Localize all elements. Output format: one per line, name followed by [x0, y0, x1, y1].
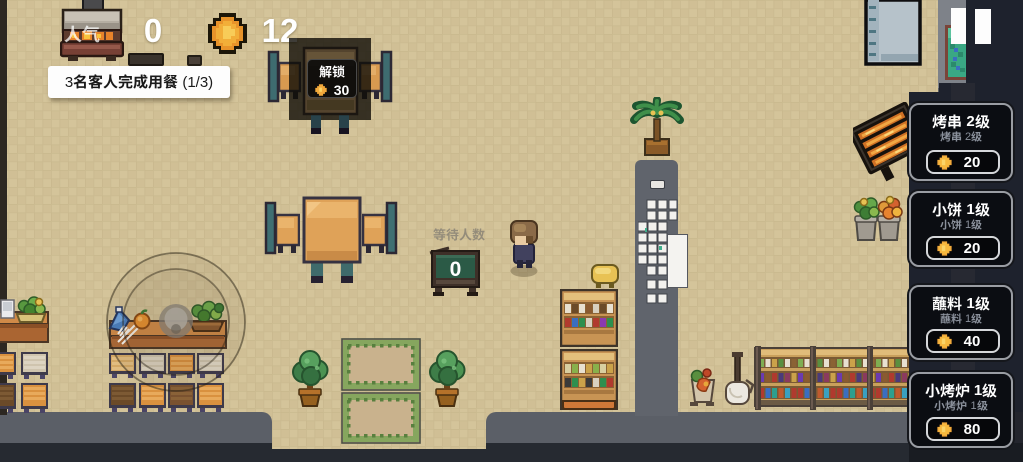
svg-text:0: 0 — [450, 258, 462, 281]
